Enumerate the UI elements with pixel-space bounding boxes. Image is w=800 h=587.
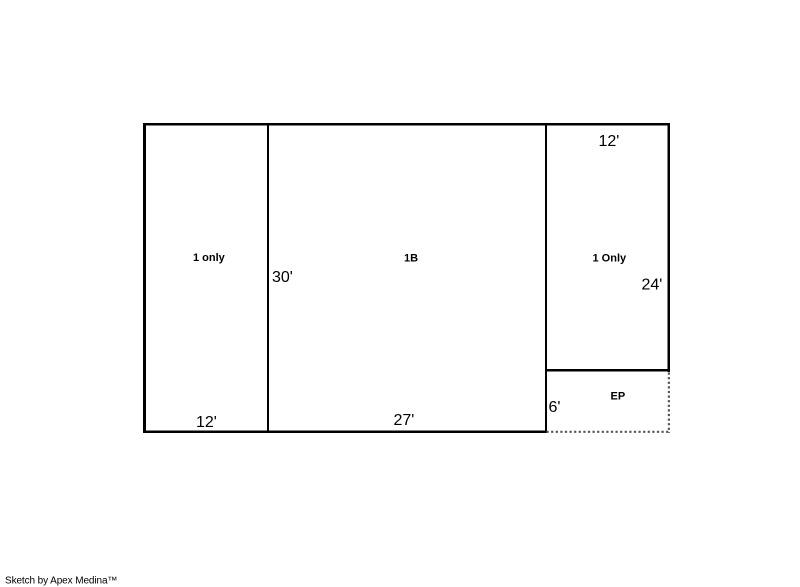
svg-text:12': 12' <box>599 133 620 150</box>
svg-text:27': 27' <box>394 412 415 429</box>
svg-text:Sketch by Apex Medina™: Sketch by Apex Medina™ <box>5 576 117 587</box>
svg-text:1B: 1B <box>404 253 418 265</box>
svg-text:1 only: 1 only <box>193 252 226 264</box>
svg-text:1 Only: 1 Only <box>593 253 628 265</box>
svg-text:6': 6' <box>549 399 561 416</box>
svg-text:30': 30' <box>272 269 293 286</box>
svg-text:12': 12' <box>196 414 217 431</box>
svg-text:24': 24' <box>642 277 663 294</box>
svg-text:EP: EP <box>611 391 626 403</box>
